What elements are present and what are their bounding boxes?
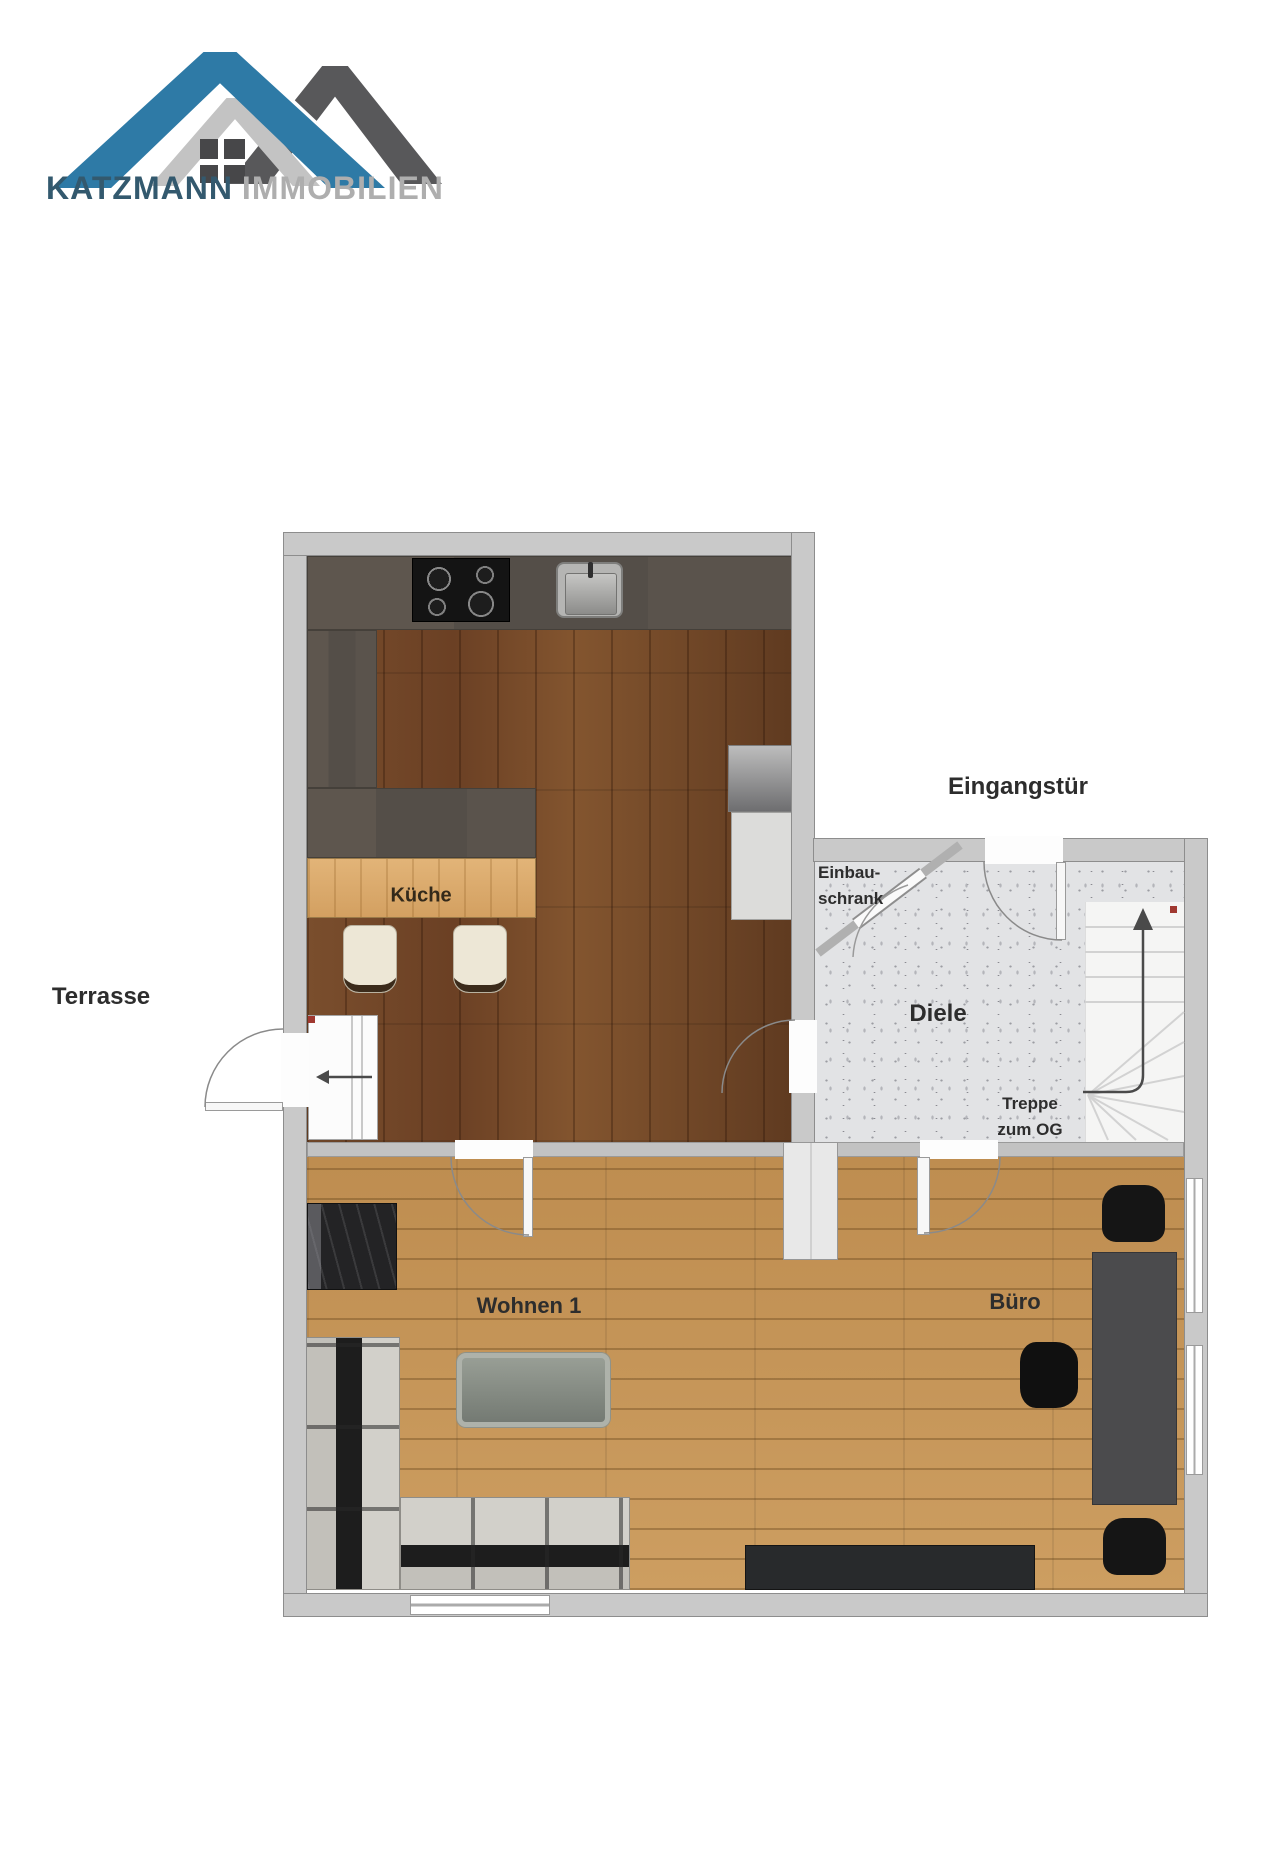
kitchen-tall-cabinet bbox=[728, 745, 795, 812]
company-logo: KATZMANNIMMOBILIEN bbox=[0, 0, 470, 230]
brand-suffix: IMMOBILIEN bbox=[242, 170, 444, 206]
office-hall-door-opening bbox=[920, 1140, 998, 1159]
label-closet-line2: schrank bbox=[818, 886, 883, 912]
label-living: Wohnen 1 bbox=[477, 1293, 582, 1319]
window-right-lower bbox=[1186, 1345, 1203, 1475]
sideboard bbox=[307, 1203, 397, 1290]
kitchen-hall-door-opening bbox=[789, 1020, 817, 1093]
red-marker-terrace bbox=[308, 1016, 315, 1023]
floor-plan-page: KATZMANNIMMOBILIEN bbox=[0, 0, 1280, 1849]
wall-top bbox=[283, 532, 813, 556]
wall-mid-horizontal bbox=[307, 1142, 1184, 1157]
label-stairs-line1: Treppe bbox=[997, 1091, 1062, 1117]
side-chair-top bbox=[1102, 1185, 1165, 1242]
brand-name: KATZMANN bbox=[46, 170, 233, 206]
side-chair-bottom bbox=[1103, 1518, 1166, 1575]
office-hall-door-leaf bbox=[917, 1157, 930, 1235]
red-marker-stairs bbox=[1170, 906, 1177, 913]
sofa-vertical-section bbox=[305, 1337, 400, 1590]
window-bottom-wall bbox=[410, 1595, 550, 1615]
kitchen-counter-top bbox=[307, 556, 795, 630]
office-chair bbox=[1020, 1342, 1078, 1408]
staircase bbox=[1085, 902, 1184, 1142]
logo-text: KATZMANNIMMOBILIEN bbox=[46, 170, 444, 207]
terrace-steps bbox=[308, 1015, 378, 1140]
cooktop-icon bbox=[412, 558, 510, 622]
living-kitchen-door-opening bbox=[455, 1140, 533, 1159]
kitchen-counter-lower bbox=[307, 788, 536, 858]
living-kitchen-door-leaf bbox=[523, 1157, 533, 1237]
office-desk bbox=[1092, 1252, 1177, 1505]
sink-basin bbox=[565, 573, 617, 615]
label-terrace: Terrasse bbox=[52, 983, 150, 1011]
label-stairs-line2: zum OG bbox=[997, 1117, 1062, 1143]
terrace-door-arc bbox=[205, 1029, 283, 1107]
coffee-table bbox=[457, 1353, 610, 1427]
label-entrance: Eingangstür bbox=[948, 773, 1088, 801]
terrace-door-opening bbox=[281, 1033, 309, 1107]
label-stairs: Treppe zum OG bbox=[997, 1091, 1062, 1143]
bar-stool-left bbox=[343, 925, 397, 993]
bar-stool-right bbox=[453, 925, 507, 993]
entrance-door-leaf bbox=[1056, 862, 1066, 940]
label-hall: Diele bbox=[909, 1000, 966, 1028]
label-kitchen: Küche bbox=[390, 885, 451, 908]
sink-icon bbox=[556, 562, 623, 618]
sink-faucet bbox=[588, 562, 593, 578]
terrace-door-leaf bbox=[205, 1102, 283, 1111]
entrance-door-opening bbox=[985, 836, 1063, 864]
kitchen-counter-left bbox=[307, 630, 377, 788]
label-office: Büro bbox=[989, 1289, 1040, 1315]
tv-lowboard bbox=[745, 1545, 1035, 1590]
sofa-horizontal-section bbox=[400, 1497, 630, 1590]
chimney-block bbox=[783, 1142, 838, 1260]
label-closet: Einbau- schrank bbox=[818, 860, 883, 912]
label-closet-line1: Einbau- bbox=[818, 860, 883, 886]
window-right-upper bbox=[1186, 1178, 1203, 1313]
kitchen-fridge-cabinet bbox=[731, 812, 795, 920]
